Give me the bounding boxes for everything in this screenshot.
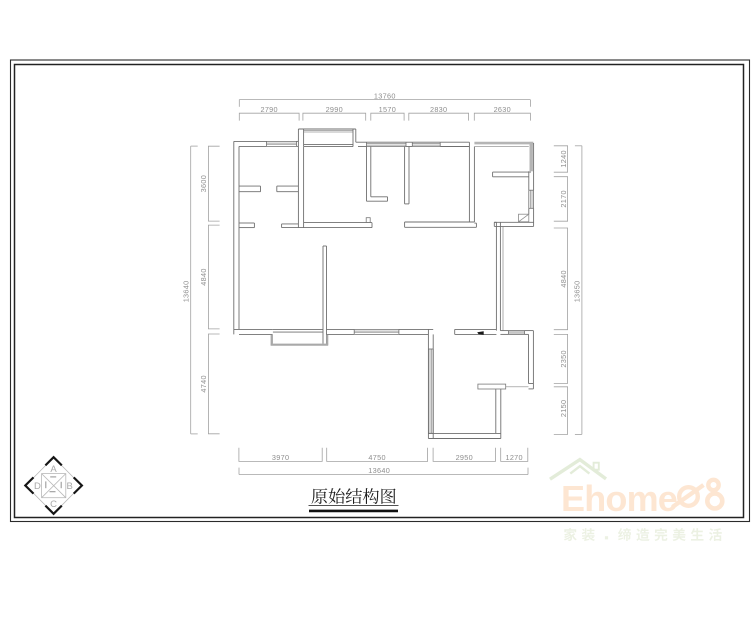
svg-text:2350: 2350 [559,350,568,367]
svg-text:D: D [34,481,41,492]
svg-text:13640: 13640 [368,466,390,475]
svg-text:4740: 4740 [199,375,208,392]
svg-text:B: B [67,481,73,492]
svg-text:3970: 3970 [272,453,289,462]
svg-text:Ehome: Ehome [561,478,677,519]
svg-text:3600: 3600 [199,175,208,192]
svg-text:4840: 4840 [199,268,208,285]
svg-text:A: A [50,464,57,475]
svg-text:2950: 2950 [456,453,473,462]
svg-text:13640: 13640 [181,281,190,303]
svg-text:13650: 13650 [573,281,582,303]
svg-text:4840: 4840 [559,270,568,287]
svg-text:2790: 2790 [260,105,277,114]
svg-text:C: C [50,499,57,510]
svg-text:2990: 2990 [326,105,343,114]
svg-text:1570: 1570 [379,105,396,114]
svg-text:2630: 2630 [494,105,511,114]
svg-text:2830: 2830 [430,105,447,114]
svg-text:2170: 2170 [559,190,568,207]
svg-text:4750: 4750 [368,453,385,462]
svg-text:2150: 2150 [559,400,568,417]
svg-text:1240: 1240 [559,150,568,167]
svg-text:1270: 1270 [505,453,522,462]
svg-text:13760: 13760 [374,91,396,100]
